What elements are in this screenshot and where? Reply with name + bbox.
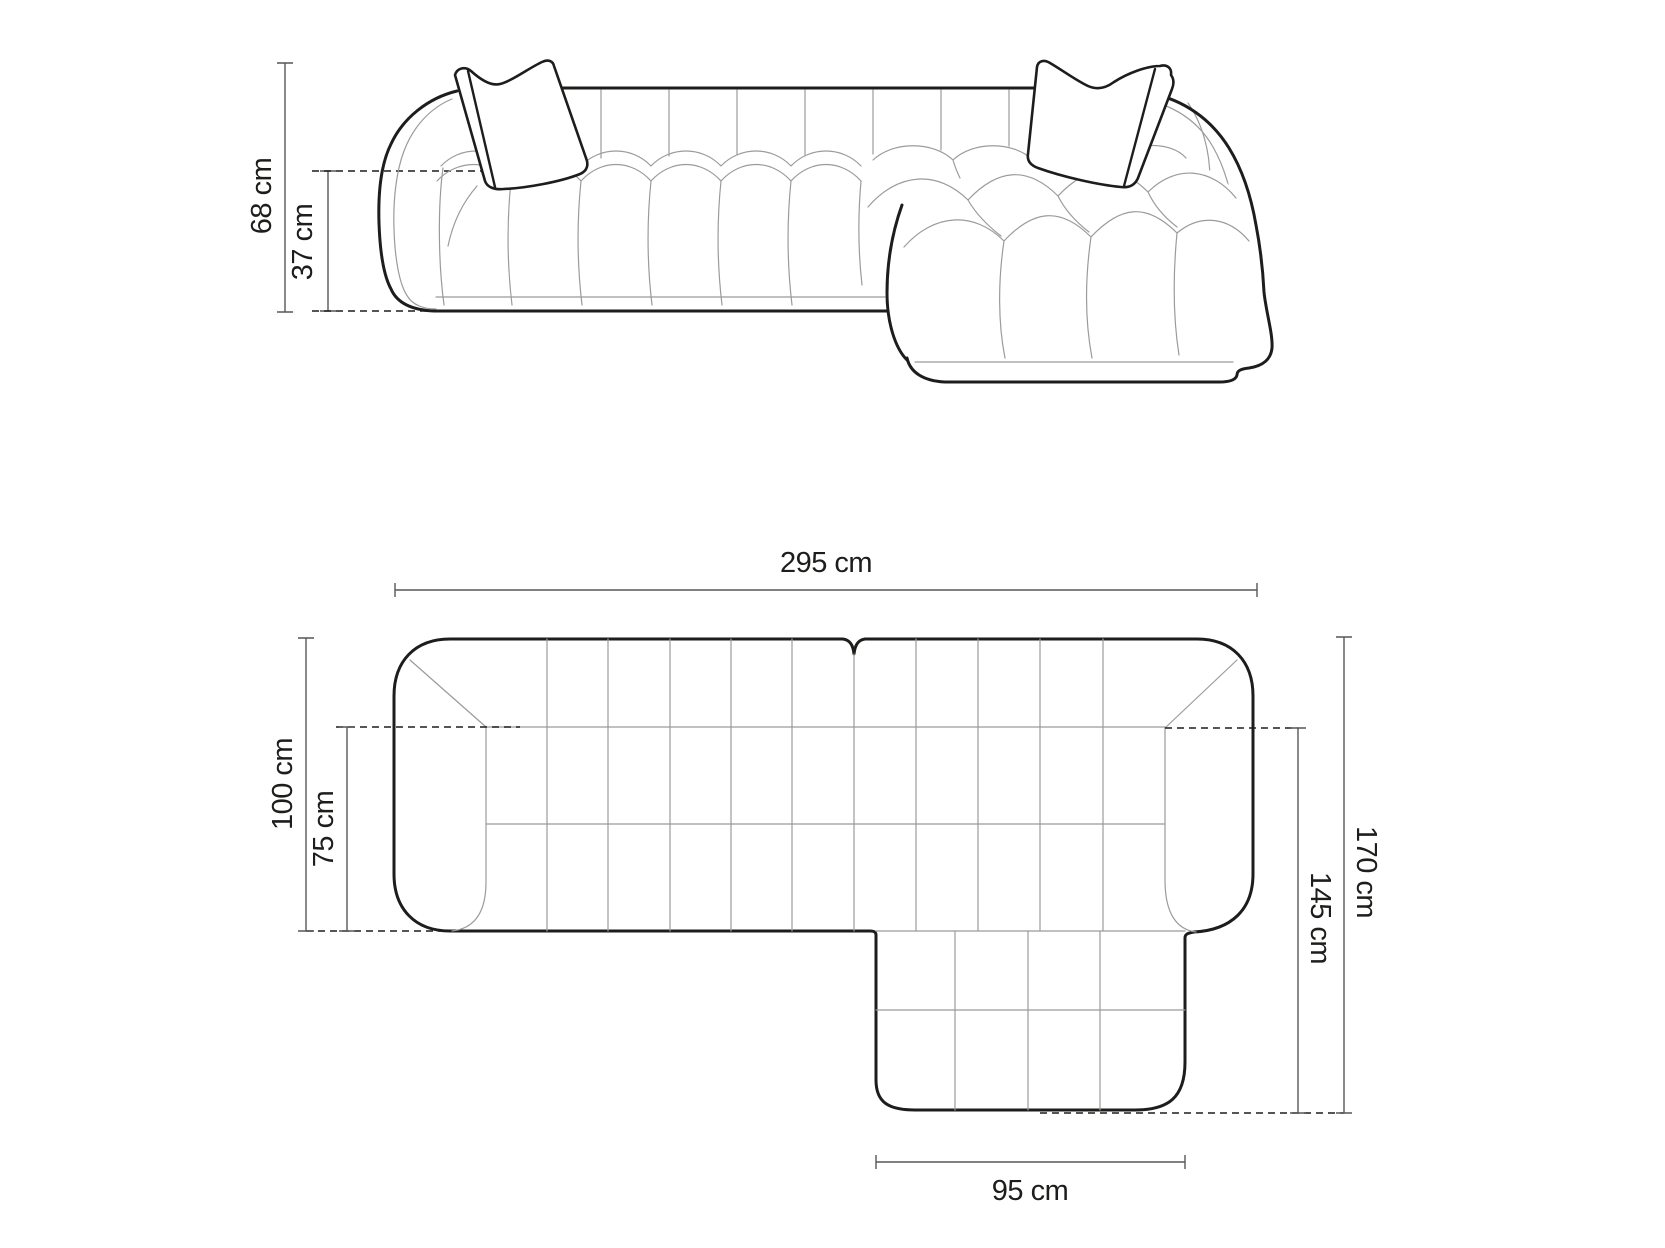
dim-total-height: 68 cm [246, 63, 293, 312]
dim-seat-depth: 75 cm [308, 727, 355, 931]
dim-chaise-width-label: 95 cm [992, 1175, 1068, 1207]
left-module-division-seams [547, 639, 792, 931]
dim-seat-depth-label: 75 cm [308, 791, 340, 867]
sofa-front-drawing [379, 61, 1272, 382]
pillow-left-under-seam [448, 186, 477, 246]
dim-seat-height-label: 37 cm [287, 204, 319, 280]
dim-chaise-total-depth: 170 cm [1336, 637, 1382, 1113]
dim-total-depth: 100 cm [267, 638, 314, 931]
top-plan-view: 295 cm 100 cm 75 cm 170 cm 145 cm 95 cm [267, 547, 1382, 1207]
left-armrest-inner-seam [452, 727, 486, 931]
front-elevation-view: 68 cm 37 cm [246, 61, 1272, 382]
inner-arm-seam-left [394, 99, 452, 309]
dim-total-width-line [395, 583, 1257, 597]
dim-total-width: 295 cm [395, 547, 1257, 597]
chaise-division-seams [955, 931, 1100, 1110]
dim-total-depth-line [298, 638, 314, 931]
dim-total-width-label: 295 cm [780, 547, 872, 579]
right-armrest-inner-seam [1165, 728, 1196, 932]
dim-seat-height: 37 cm [287, 171, 336, 311]
dim-chaise-inner-depth: 145 cm [1290, 728, 1336, 1113]
right-module-division-seams [916, 639, 1103, 931]
sofa-dimension-diagram: 68 cm 37 cm [0, 0, 1665, 1248]
chaise-block-silhouette [887, 159, 1272, 382]
left-pillow [455, 61, 587, 190]
dim-chaise-total-depth-label: 170 cm [1350, 826, 1382, 918]
dim-chaise-total-depth-line [1336, 637, 1352, 1113]
right-armrest-diagonal-seam [1165, 660, 1237, 728]
dim-chaise-width-line [876, 1155, 1185, 1169]
sofa-plan-drawing [394, 639, 1253, 1110]
left-arm-and-base-outline [379, 91, 889, 311]
dim-total-depth-label: 100 cm [267, 738, 299, 830]
dim-chaise-inner-depth-label: 145 cm [1304, 872, 1336, 964]
backrest-channel-seams [601, 90, 1009, 158]
left-armrest-diagonal-seam [410, 660, 486, 727]
dim-chaise-inner-depth-line [1290, 728, 1306, 1113]
dim-chaise-width: 95 cm [876, 1155, 1185, 1207]
dim-seat-depth-line [339, 727, 355, 931]
diagram-canvas: 68 cm 37 cm [0, 0, 1665, 1248]
plan-outline [394, 639, 1253, 1110]
dim-total-height-label: 68 cm [246, 158, 278, 234]
dim-seat-height-line [320, 171, 336, 311]
